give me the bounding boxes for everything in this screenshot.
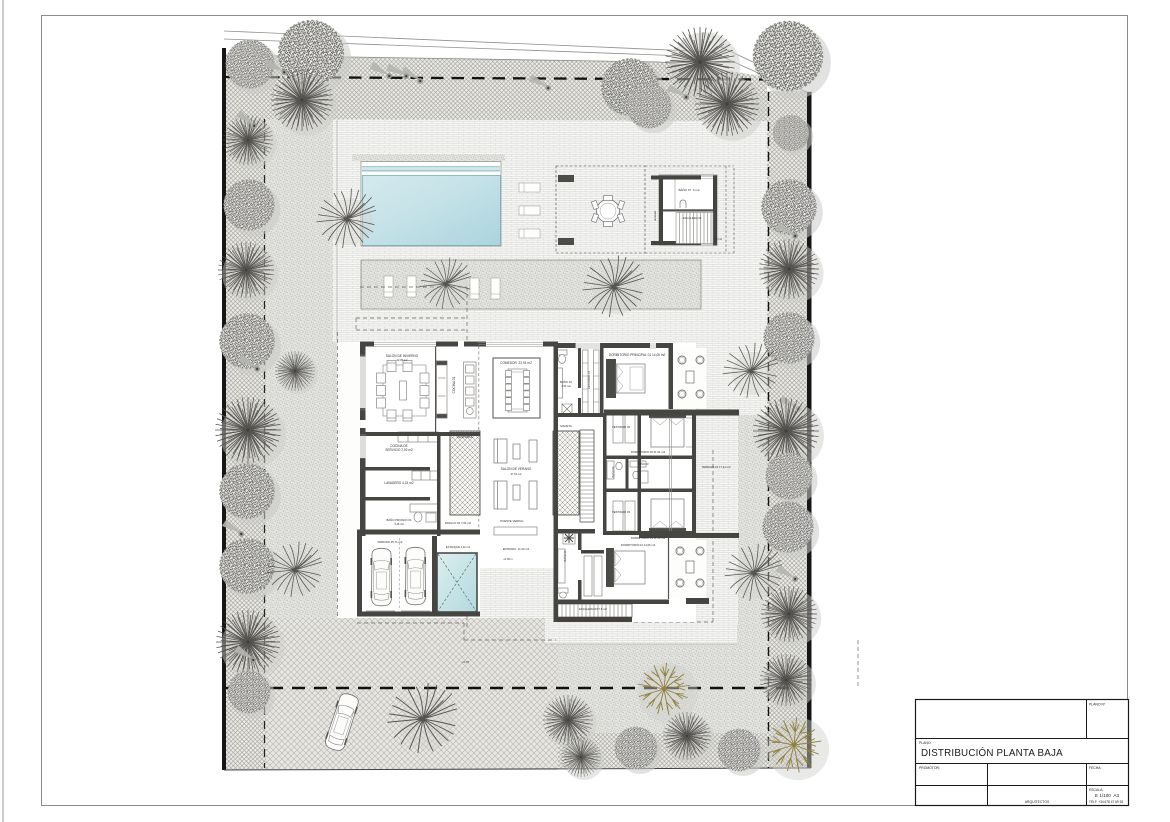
svg-text:MACETA: MACETA <box>560 424 572 428</box>
svg-text:VESTIDOR 01: VESTIDOR 01 <box>587 370 591 389</box>
svg-text:DISTRIBUCIÓN PLANTA BAJA: DISTRIBUCIÓN PLANTA BAJA <box>921 748 1063 759</box>
svg-text:ESCALERA 03 7,5 m2: ESCALERA 03 7,5 m2 <box>579 607 607 611</box>
svg-text:E 1/100 A3: E 1/100 A3 <box>1095 793 1119 798</box>
svg-text:LAVADERO 4,15 m2: LAVADERO 4,15 m2 <box>384 481 414 485</box>
svg-text:DESPENSA: DESPENSA <box>457 435 472 439</box>
svg-text:ARQUITECTOS: ARQUITECTOS <box>1025 800 1050 804</box>
svg-text:DORMITORIO 03 11,51 m2: DORMITORIO 03 11,51 m2 <box>631 536 666 540</box>
svg-text:antesala: antesala <box>653 211 657 221</box>
svg-text:BAÑO PRIVADO 01: BAÑO PRIVADO 01 <box>387 517 412 522</box>
svg-text:5,5 m2: 5,5 m2 <box>714 237 722 241</box>
svg-text:+0,00 m: +0,00 m <box>503 557 512 561</box>
svg-text:4,63 m2: 4,63 m2 <box>561 384 571 388</box>
svg-text:BAÑO 02: BAÑO 02 <box>560 379 572 384</box>
svg-text:+0,05: +0,05 <box>462 660 470 664</box>
svg-text:DORMITORIO 02 11,51 m2: DORMITORIO 02 11,51 m2 <box>631 450 666 454</box>
svg-text:TERRAZA 01 17,11 m2: TERRAZA 01 17,11 m2 <box>701 465 730 469</box>
svg-text:ESTANQUE 4,32 m2: ESTANQUE 4,32 m2 <box>446 545 471 549</box>
svg-text:VESTIDOR 03: VESTIDOR 03 <box>612 510 631 514</box>
svg-text:COCINA 01: COCINA 01 <box>452 376 456 393</box>
svg-text:22,05 m2: 22,05 m2 <box>397 358 408 362</box>
svg-text:37,51 m2: 37,51 m2 <box>511 472 522 476</box>
svg-text:PLANO Nº: PLANO Nº <box>1089 703 1106 707</box>
svg-text:BAÑO 07 6 m2: BAÑO 07 6 m2 <box>678 187 699 192</box>
svg-text:SALON DE INVIERNO: SALON DE INVIERNO <box>386 354 419 358</box>
svg-text:DORMITORIO 04 14,06 m2: DORMITORIO 04 14,06 m2 <box>621 543 656 547</box>
svg-text:3,45 m2: 3,45 m2 <box>394 522 404 526</box>
svg-text:ESCALERA 02: ESCALERA 02 <box>683 216 702 220</box>
svg-text:TELF. +34 678 47 69 93: TELF. +34 678 47 69 93 <box>1089 800 1123 804</box>
svg-text:DORMITORIO PRINCIPAL 01 14,06: DORMITORIO PRINCIPAL 01 14,06 m2 <box>609 353 666 357</box>
svg-text:PUENTE VERDAL: PUENTE VERDAL <box>500 519 524 523</box>
svg-text:SERVICIO 7,92 m2: SERVICIO 7,92 m2 <box>385 448 413 452</box>
svg-text:PASILLO 02 7,81 m2: PASILLO 02 7,81 m2 <box>445 521 472 525</box>
svg-text:VESTIDOR 04: VESTIDOR 04 <box>584 551 601 554</box>
svg-text:ESCALA:: ESCALA: <box>1089 788 1103 792</box>
svg-text:PLANO:: PLANO: <box>919 741 931 745</box>
svg-text:FECHA:: FECHA: <box>1089 766 1101 770</box>
svg-text:PARKING 35,71 m2: PARKING 35,71 m2 <box>378 540 403 544</box>
svg-text:VESTIDOR 02: VESTIDOR 02 <box>612 425 631 429</box>
svg-text:SALON DE VERANO: SALON DE VERANO <box>501 467 532 471</box>
svg-text:PROMOTOR:: PROMOTOR: <box>919 766 940 770</box>
svg-text:COMEDOR 22,91 m2: COMEDOR 22,91 m2 <box>500 361 532 365</box>
svg-text:ENTRADA 11,32 m2: ENTRADA 11,32 m2 <box>503 547 530 551</box>
